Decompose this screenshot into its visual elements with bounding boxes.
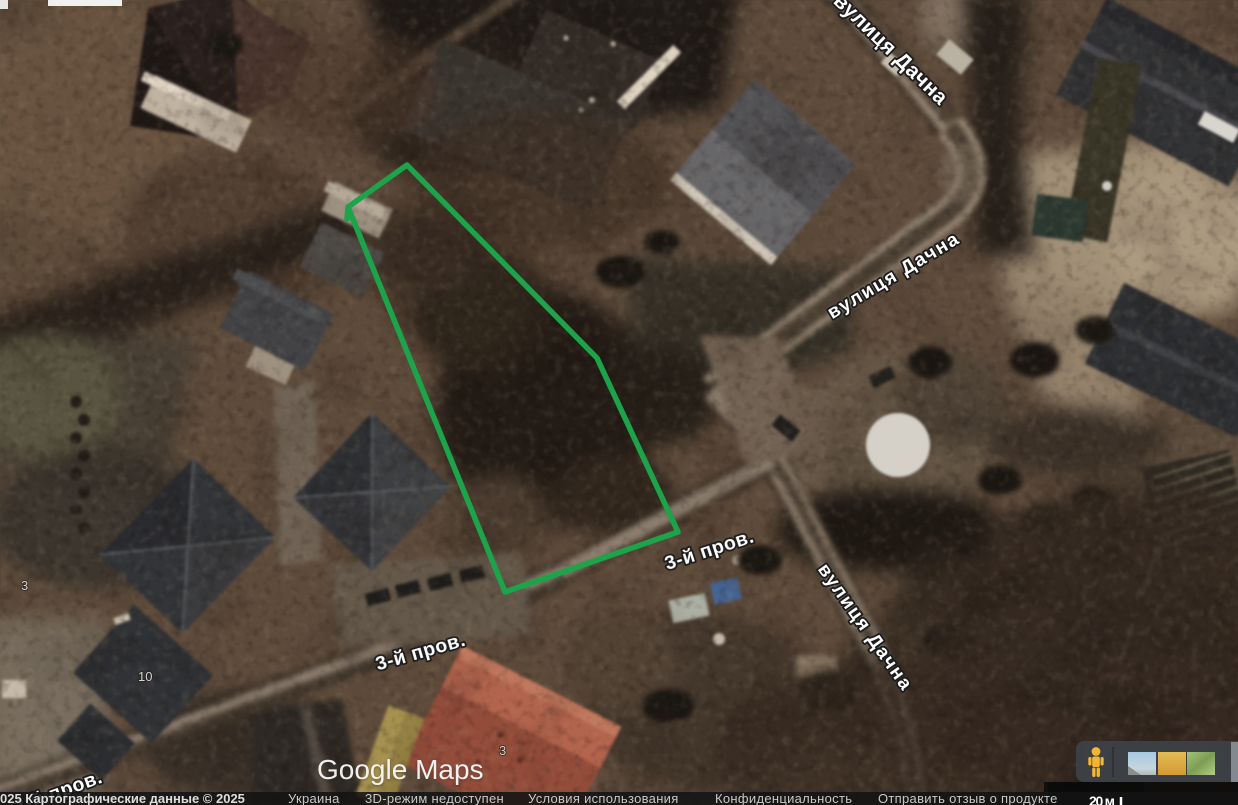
svg-text:20 м: 20 м (1089, 793, 1115, 805)
svg-text:3: 3 (499, 743, 506, 758)
svg-text:Украина: Украина (288, 791, 340, 805)
svg-text:Условия использования: Условия использования (528, 791, 679, 805)
svg-text:Google Maps: Google Maps (317, 754, 484, 785)
svg-text:3D-режим недоступен: 3D-режим недоступен (365, 791, 504, 805)
svg-text:3: 3 (21, 578, 28, 593)
svg-text:10: 10 (138, 669, 152, 684)
svg-text:Отправить отзыв о продукте: Отправить отзыв о продукте (878, 791, 1058, 805)
svg-text:025 Картографические данные ©: 025 Картографические данные © 2025 (0, 791, 245, 805)
svg-text:Конфиденциальность: Конфиденциальность (715, 791, 852, 805)
